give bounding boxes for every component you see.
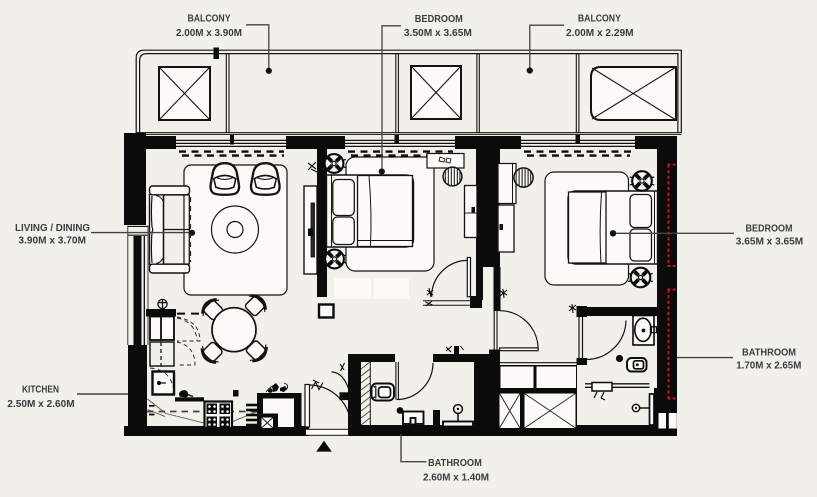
svg-text:BALCONY: BALCONY [188, 14, 231, 25]
svg-text:BATHROOM: BATHROOM [428, 458, 482, 469]
svg-text:3.50M x 3.65M: 3.50M x 3.65M [404, 28, 472, 39]
svg-text:1.70M x 2.65M: 1.70M x 2.65M [736, 361, 801, 372]
svg-text:2.00M x 2.29M: 2.00M x 2.29M [566, 28, 634, 39]
svg-text:BEDROOM: BEDROOM [415, 14, 463, 25]
svg-text:2.00M x 3.90M: 2.00M x 3.90M [176, 28, 242, 39]
svg-text:LIVING / DINING: LIVING / DINING [15, 223, 90, 234]
svg-text:BEDROOM: BEDROOM [746, 223, 793, 234]
svg-text:3.65M x 3.65M: 3.65M x 3.65M [736, 237, 804, 248]
svg-text:2.60M x 1.40M: 2.60M x 1.40M [423, 473, 489, 484]
svg-text:3.90M x 3.70M: 3.90M x 3.70M [18, 236, 86, 247]
svg-text:2.50M x 2.60M: 2.50M x 2.60M [7, 399, 74, 410]
svg-text:BATHROOM: BATHROOM [742, 348, 796, 359]
svg-text:KITCHEN: KITCHEN [22, 384, 59, 395]
svg-text:BALCONY: BALCONY [578, 14, 621, 25]
